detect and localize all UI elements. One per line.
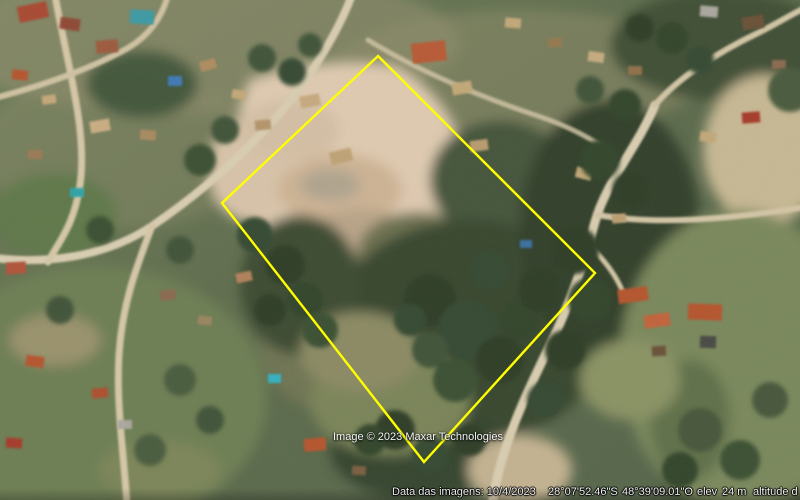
satellite-imagery[interactable]	[0, 0, 800, 500]
map-viewport[interactable]: Image © 2023 Maxar Technologies Data das…	[0, 0, 800, 500]
image-grain	[0, 0, 800, 500]
